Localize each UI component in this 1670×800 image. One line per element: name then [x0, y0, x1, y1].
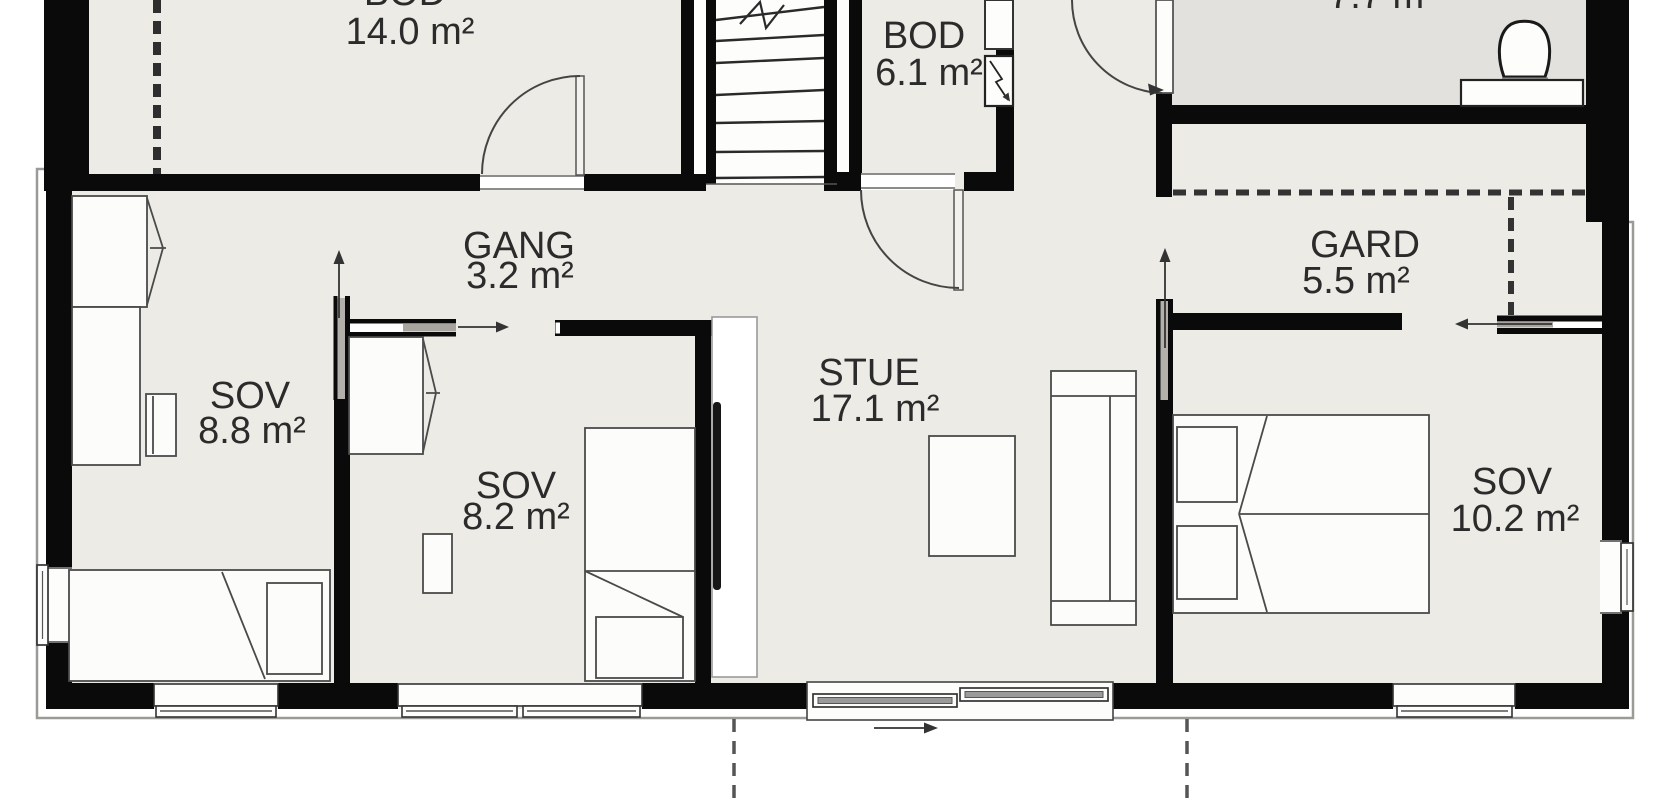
svg-text:7.7 m²: 7.7 m²	[1329, 0, 1437, 17]
svg-text:14.0 m²: 14.0 m²	[346, 11, 475, 53]
svg-text:BOD: BOD	[883, 15, 965, 57]
svg-text:17.1 m²: 17.1 m²	[811, 388, 940, 430]
svg-text:8.8 m²: 8.8 m²	[198, 410, 306, 452]
svg-text:6.1 m²: 6.1 m²	[875, 52, 983, 94]
svg-text:8.2 m²: 8.2 m²	[462, 496, 570, 538]
svg-text:SOV: SOV	[1472, 461, 1553, 503]
svg-text:5.5 m²: 5.5 m²	[1302, 260, 1410, 302]
svg-text:3.2 m²: 3.2 m²	[466, 255, 574, 297]
svg-text:10.2 m²: 10.2 m²	[1451, 498, 1580, 540]
